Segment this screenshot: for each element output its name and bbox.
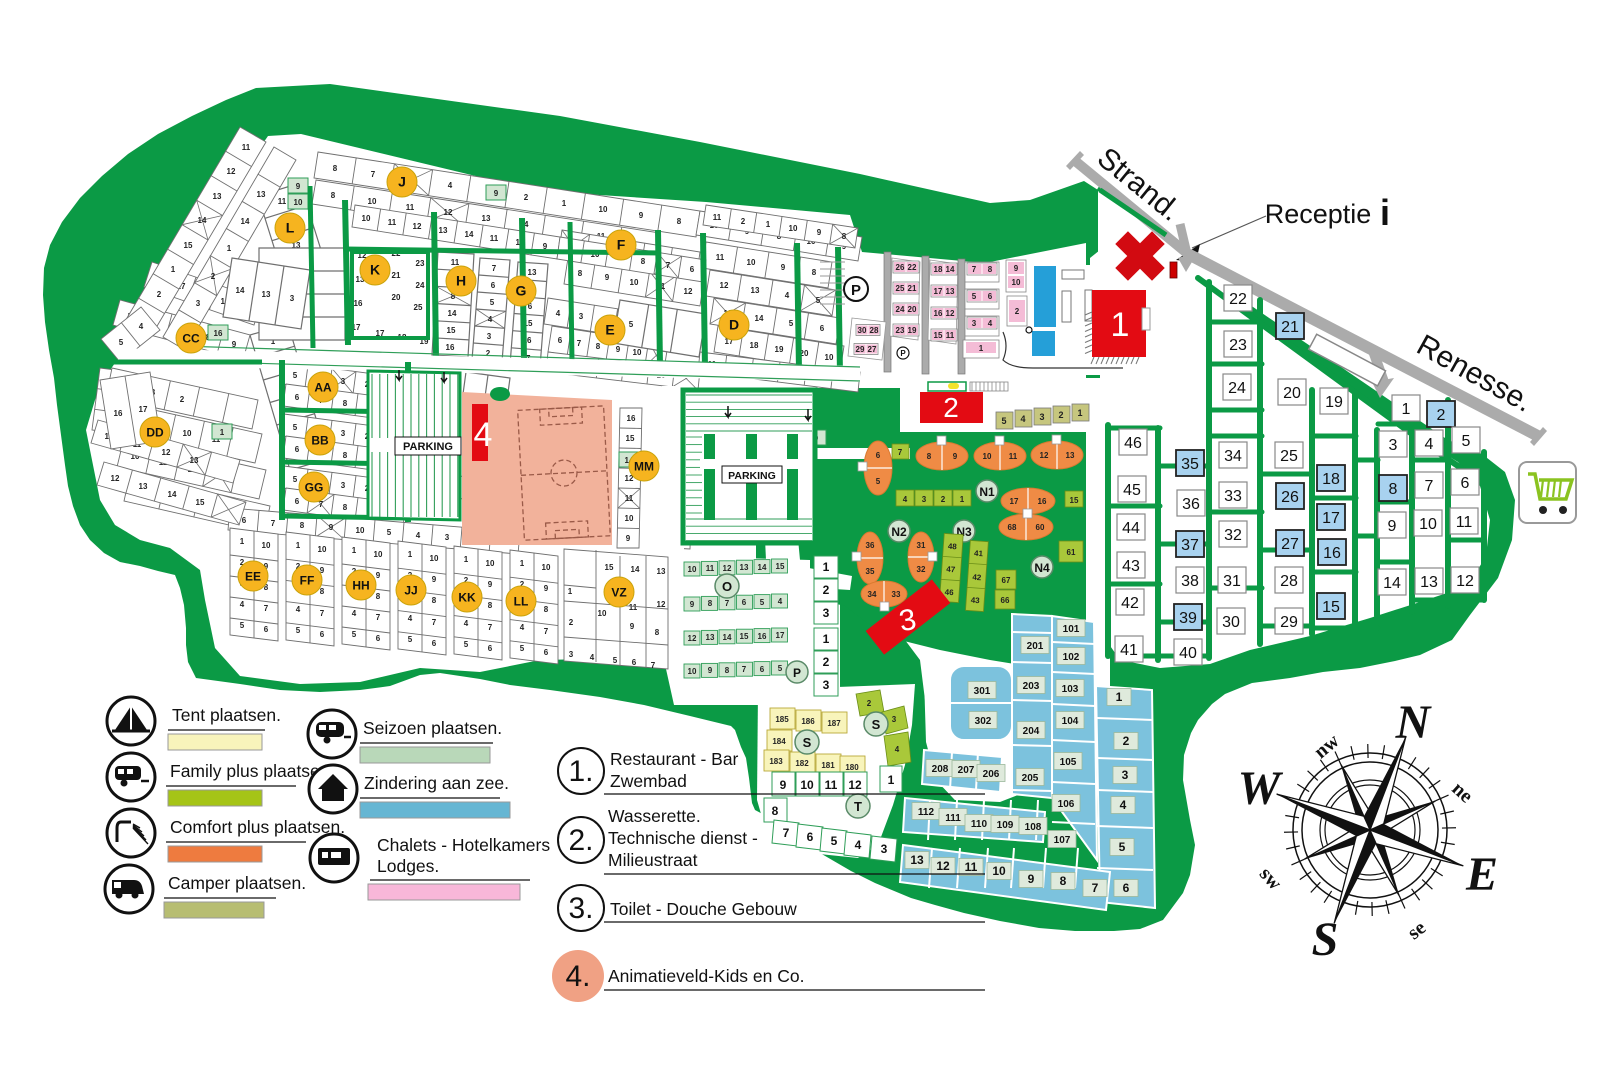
svg-text:10: 10 xyxy=(294,198,303,207)
svg-text:16: 16 xyxy=(1323,545,1341,562)
svg-text:7: 7 xyxy=(271,519,276,528)
svg-text:10: 10 xyxy=(598,609,607,618)
svg-text:1: 1 xyxy=(352,546,357,555)
svg-text:11: 11 xyxy=(388,218,397,227)
svg-text:8: 8 xyxy=(544,605,549,614)
svg-text:11: 11 xyxy=(406,203,415,212)
svg-text:9: 9 xyxy=(329,523,334,532)
svg-text:4: 4 xyxy=(448,181,453,190)
svg-text:3: 3 xyxy=(341,429,346,438)
svg-text:14: 14 xyxy=(465,230,474,239)
svg-text:11: 11 xyxy=(706,564,715,573)
svg-text:10: 10 xyxy=(688,565,697,574)
svg-text:40: 40 xyxy=(1179,645,1197,662)
svg-text:7: 7 xyxy=(1092,881,1099,895)
svg-text:12: 12 xyxy=(162,448,171,457)
svg-text:13: 13 xyxy=(213,192,222,201)
svg-text:14: 14 xyxy=(755,314,764,323)
svg-text:10: 10 xyxy=(318,545,327,554)
svg-text:33: 33 xyxy=(1224,488,1242,505)
svg-text:32: 32 xyxy=(1224,527,1242,544)
svg-text:9: 9 xyxy=(1028,872,1035,886)
svg-text:2: 2 xyxy=(486,349,491,358)
svg-text:186: 186 xyxy=(801,717,815,726)
svg-text:16: 16 xyxy=(627,414,636,423)
svg-text:32: 32 xyxy=(917,565,926,574)
svg-text:13: 13 xyxy=(946,287,955,296)
svg-text:2: 2 xyxy=(524,193,529,202)
svg-text:3: 3 xyxy=(881,842,888,856)
svg-text:46: 46 xyxy=(1124,435,1142,452)
svg-text:1: 1 xyxy=(960,495,965,504)
svg-text:5: 5 xyxy=(119,338,124,347)
svg-text:16: 16 xyxy=(934,309,943,318)
svg-text:1: 1 xyxy=(562,199,567,208)
svg-text:17: 17 xyxy=(139,405,148,414)
svg-text:11: 11 xyxy=(1009,452,1018,461)
svg-text:23: 23 xyxy=(1229,337,1247,354)
svg-text:61: 61 xyxy=(1067,548,1076,557)
svg-text:12: 12 xyxy=(936,859,950,873)
svg-text:22: 22 xyxy=(908,263,917,272)
svg-text:5: 5 xyxy=(408,635,413,644)
svg-text:13: 13 xyxy=(439,226,448,235)
svg-text:34: 34 xyxy=(1224,448,1242,465)
svg-text:6: 6 xyxy=(295,497,300,506)
svg-text:47: 47 xyxy=(946,565,956,575)
svg-text:FF: FF xyxy=(300,574,315,588)
svg-text:4: 4 xyxy=(464,619,469,628)
svg-text:11: 11 xyxy=(451,258,460,267)
svg-text:7: 7 xyxy=(432,618,437,627)
svg-text:6: 6 xyxy=(690,265,695,274)
svg-text:EE: EE xyxy=(245,570,261,584)
svg-text:181: 181 xyxy=(821,761,835,770)
svg-text:33: 33 xyxy=(892,590,901,599)
svg-text:10: 10 xyxy=(542,563,551,572)
svg-text:1: 1 xyxy=(1077,408,1082,418)
svg-text:30: 30 xyxy=(858,326,867,335)
svg-text:18: 18 xyxy=(1322,471,1340,488)
svg-text:Zwembad: Zwembad xyxy=(610,771,687,791)
svg-text:12: 12 xyxy=(413,222,422,231)
svg-text:68: 68 xyxy=(1008,523,1017,532)
svg-text:5: 5 xyxy=(1119,840,1126,854)
svg-text:9: 9 xyxy=(817,228,822,237)
svg-text:1: 1 xyxy=(823,632,830,646)
svg-text:6: 6 xyxy=(242,516,247,525)
svg-text:9: 9 xyxy=(494,189,499,198)
svg-text:2: 2 xyxy=(941,495,946,504)
svg-text:Restaurant - Bar: Restaurant - Bar xyxy=(610,749,739,769)
svg-text:13: 13 xyxy=(257,190,266,199)
svg-text:106: 106 xyxy=(1058,799,1075,810)
svg-text:37: 37 xyxy=(1181,537,1199,554)
svg-text:1: 1 xyxy=(296,541,301,550)
svg-text:3: 3 xyxy=(290,294,295,303)
svg-text:4: 4 xyxy=(240,600,245,609)
svg-text:9: 9 xyxy=(1388,518,1397,535)
svg-text:PARKING: PARKING xyxy=(403,441,453,453)
svg-text:15: 15 xyxy=(184,241,193,250)
svg-text:N2: N2 xyxy=(891,525,907,539)
svg-text:13: 13 xyxy=(751,286,760,295)
svg-text:13: 13 xyxy=(657,567,666,576)
svg-text:2: 2 xyxy=(180,395,185,404)
svg-text:11: 11 xyxy=(1456,514,1473,531)
svg-text:6: 6 xyxy=(760,665,765,674)
svg-text:9: 9 xyxy=(544,584,549,593)
svg-text:10: 10 xyxy=(992,864,1006,878)
svg-text:15: 15 xyxy=(626,434,635,443)
svg-text:6: 6 xyxy=(988,292,993,301)
svg-text:105: 105 xyxy=(1060,757,1077,768)
svg-text:20: 20 xyxy=(392,293,401,302)
svg-text:T: T xyxy=(854,799,862,814)
svg-text:1: 1 xyxy=(408,550,413,559)
svg-text:7: 7 xyxy=(742,665,747,674)
svg-text:4: 4 xyxy=(520,623,525,632)
svg-text:111: 111 xyxy=(945,813,961,824)
svg-text:101: 101 xyxy=(1063,624,1080,635)
svg-text:8: 8 xyxy=(333,164,338,173)
svg-text:8: 8 xyxy=(432,596,437,605)
svg-text:16: 16 xyxy=(446,343,455,352)
svg-text:18: 18 xyxy=(934,265,943,274)
svg-text:6: 6 xyxy=(264,625,269,634)
svg-text:3.: 3. xyxy=(568,892,593,925)
svg-text:10: 10 xyxy=(1419,516,1437,533)
svg-text:5: 5 xyxy=(293,423,298,432)
svg-text:26: 26 xyxy=(896,263,905,272)
svg-text:2: 2 xyxy=(211,272,216,281)
svg-text:1: 1 xyxy=(1111,306,1130,344)
svg-text:207: 207 xyxy=(958,765,975,776)
svg-text:6: 6 xyxy=(295,393,300,402)
svg-text:4: 4 xyxy=(988,319,993,328)
svg-text:31: 31 xyxy=(917,541,926,550)
svg-text:1: 1 xyxy=(568,587,573,596)
svg-text:S: S xyxy=(1312,913,1339,966)
svg-text:20: 20 xyxy=(1283,385,1301,402)
svg-text:P: P xyxy=(793,666,801,680)
svg-text:8: 8 xyxy=(641,257,646,266)
svg-text:S: S xyxy=(803,735,812,750)
svg-text:2: 2 xyxy=(1437,407,1446,424)
svg-text:7: 7 xyxy=(371,170,376,179)
svg-text:1: 1 xyxy=(823,560,830,574)
svg-text:W: W xyxy=(1238,762,1284,815)
svg-text:1: 1 xyxy=(227,244,232,253)
svg-text:8: 8 xyxy=(842,232,847,241)
svg-text:i: i xyxy=(1380,192,1390,233)
svg-text:3: 3 xyxy=(487,332,492,341)
svg-text:10: 10 xyxy=(630,278,639,287)
svg-text:6: 6 xyxy=(820,324,825,333)
svg-text:8: 8 xyxy=(320,587,325,596)
svg-text:29: 29 xyxy=(856,345,865,354)
svg-text:8: 8 xyxy=(708,599,713,608)
svg-text:4: 4 xyxy=(895,745,900,754)
svg-text:11: 11 xyxy=(716,253,725,262)
svg-text:5: 5 xyxy=(296,626,301,635)
svg-text:7: 7 xyxy=(1425,478,1434,495)
svg-text:3: 3 xyxy=(823,678,830,692)
svg-text:8: 8 xyxy=(578,269,583,278)
svg-text:60: 60 xyxy=(1036,523,1045,532)
svg-text:17: 17 xyxy=(1322,510,1340,527)
svg-text:5: 5 xyxy=(293,371,298,380)
svg-text:E: E xyxy=(1465,848,1498,901)
svg-text:13: 13 xyxy=(528,268,537,277)
svg-text:J: J xyxy=(398,174,406,190)
svg-text:7: 7 xyxy=(783,826,790,840)
svg-text:2: 2 xyxy=(823,655,830,669)
svg-text:11: 11 xyxy=(278,197,287,206)
svg-text:5: 5 xyxy=(1001,416,1006,426)
svg-text:18: 18 xyxy=(750,341,759,350)
svg-text:27: 27 xyxy=(868,345,877,354)
svg-text:112: 112 xyxy=(918,807,935,818)
svg-text:10: 10 xyxy=(633,348,642,357)
svg-text:26: 26 xyxy=(1281,489,1299,506)
svg-text:19: 19 xyxy=(1325,394,1343,411)
svg-text:15: 15 xyxy=(605,563,614,572)
svg-text:25: 25 xyxy=(896,284,905,293)
svg-text:12: 12 xyxy=(444,208,453,217)
svg-text:1: 1 xyxy=(766,220,771,229)
svg-text:3: 3 xyxy=(892,715,897,724)
svg-text:36: 36 xyxy=(1182,496,1200,513)
svg-text:9: 9 xyxy=(432,575,437,584)
svg-text:10: 10 xyxy=(430,554,439,563)
svg-text:1: 1 xyxy=(1116,690,1123,704)
svg-text:7: 7 xyxy=(264,604,269,613)
svg-text:DD: DD xyxy=(146,426,164,440)
svg-text:184: 184 xyxy=(772,737,786,746)
svg-text:14: 14 xyxy=(946,265,955,274)
svg-text:3: 3 xyxy=(579,312,584,321)
svg-text:14: 14 xyxy=(198,216,207,225)
svg-text:12: 12 xyxy=(1040,451,1049,460)
svg-text:3: 3 xyxy=(341,377,346,386)
svg-text:7: 7 xyxy=(972,265,977,274)
svg-text:11: 11 xyxy=(713,213,722,222)
svg-text:5: 5 xyxy=(240,621,245,630)
svg-text:9: 9 xyxy=(488,580,493,589)
svg-text:182: 182 xyxy=(795,759,809,768)
svg-text:7: 7 xyxy=(725,599,730,608)
svg-text:11: 11 xyxy=(625,494,634,503)
svg-text:19: 19 xyxy=(775,345,784,354)
svg-text:Lodges.: Lodges. xyxy=(377,856,439,876)
svg-text:35: 35 xyxy=(1181,456,1199,473)
svg-text:3: 3 xyxy=(1039,412,1044,422)
svg-text:9: 9 xyxy=(1014,264,1019,273)
svg-text:3: 3 xyxy=(1122,768,1129,782)
svg-text:HH: HH xyxy=(352,579,369,593)
svg-text:8: 8 xyxy=(927,452,932,461)
svg-text:4: 4 xyxy=(903,495,908,504)
svg-text:9: 9 xyxy=(616,345,621,354)
svg-text:7: 7 xyxy=(320,609,325,618)
svg-text:43: 43 xyxy=(970,596,980,606)
svg-text:5: 5 xyxy=(520,644,525,653)
svg-text:14: 14 xyxy=(1383,575,1401,592)
svg-text:24: 24 xyxy=(416,281,425,290)
svg-text:KK: KK xyxy=(458,591,476,605)
svg-text:205: 205 xyxy=(1022,773,1039,784)
svg-text:10: 10 xyxy=(486,559,495,568)
svg-text:44: 44 xyxy=(1122,520,1140,537)
svg-text:13: 13 xyxy=(190,456,199,465)
svg-text:BB: BB xyxy=(311,434,329,448)
svg-text:14: 14 xyxy=(168,490,177,499)
svg-text:3: 3 xyxy=(341,481,346,490)
svg-text:5: 5 xyxy=(876,477,881,486)
svg-text:10: 10 xyxy=(183,429,192,438)
svg-text:66: 66 xyxy=(1001,596,1010,605)
svg-text:28: 28 xyxy=(870,326,879,335)
svg-text:5: 5 xyxy=(972,292,977,301)
svg-text:P: P xyxy=(851,282,861,299)
svg-text:27: 27 xyxy=(1281,536,1299,553)
svg-text:6: 6 xyxy=(876,451,881,460)
svg-text:1.: 1. xyxy=(568,755,593,788)
svg-text:42: 42 xyxy=(1121,595,1139,612)
svg-text:3: 3 xyxy=(196,299,201,308)
svg-text:N1: N1 xyxy=(979,485,995,499)
svg-text:N4: N4 xyxy=(1034,561,1050,575)
svg-text:204: 204 xyxy=(1023,726,1040,737)
svg-text:4: 4 xyxy=(474,416,493,454)
svg-text:7: 7 xyxy=(488,623,493,632)
svg-text:3: 3 xyxy=(972,319,977,328)
svg-text:9: 9 xyxy=(708,666,713,675)
svg-text:36: 36 xyxy=(866,541,875,550)
svg-text:12: 12 xyxy=(946,309,955,318)
svg-text:8: 8 xyxy=(1060,874,1067,888)
svg-text:4: 4 xyxy=(556,309,561,318)
svg-text:6: 6 xyxy=(1123,881,1130,895)
svg-text:22: 22 xyxy=(1229,291,1247,308)
svg-text:14: 14 xyxy=(723,633,732,642)
svg-text:15: 15 xyxy=(740,632,749,641)
svg-text:38: 38 xyxy=(1181,573,1199,590)
svg-text:3: 3 xyxy=(1389,437,1398,454)
svg-text:6: 6 xyxy=(558,336,563,345)
svg-text:9: 9 xyxy=(376,571,381,580)
svg-text:Wasserette.: Wasserette. xyxy=(608,806,701,826)
svg-text:14: 14 xyxy=(241,217,250,226)
svg-text:Toilet - Douche Gebouw: Toilet - Douche Gebouw xyxy=(610,899,797,919)
svg-text:9: 9 xyxy=(630,622,635,631)
svg-text:16: 16 xyxy=(354,299,363,308)
svg-text:12: 12 xyxy=(227,167,236,176)
svg-text:9: 9 xyxy=(690,600,695,609)
svg-text:10: 10 xyxy=(825,353,834,362)
svg-text:12: 12 xyxy=(723,564,732,573)
svg-text:5: 5 xyxy=(1462,433,1471,450)
svg-text:10: 10 xyxy=(688,667,697,676)
svg-text:VZ: VZ xyxy=(611,586,626,600)
svg-text:Camper plaatsen.: Camper plaatsen. xyxy=(168,873,306,893)
svg-text:12: 12 xyxy=(848,778,862,792)
svg-text:14: 14 xyxy=(448,309,457,318)
svg-text:3: 3 xyxy=(569,650,574,659)
svg-text:5: 5 xyxy=(387,528,392,537)
svg-text:23: 23 xyxy=(416,259,425,268)
svg-text:H: H xyxy=(456,273,466,289)
svg-text:10: 10 xyxy=(262,541,271,550)
svg-text:10: 10 xyxy=(747,258,756,267)
svg-text:104: 104 xyxy=(1062,716,1079,727)
svg-text:2.: 2. xyxy=(568,824,593,857)
svg-text:6: 6 xyxy=(376,634,381,643)
svg-text:10: 10 xyxy=(983,452,992,461)
svg-text:17: 17 xyxy=(1010,497,1019,506)
svg-text:8: 8 xyxy=(343,503,348,512)
svg-text:1: 1 xyxy=(220,428,225,437)
svg-text:9: 9 xyxy=(953,452,958,461)
svg-text:109: 109 xyxy=(997,820,1014,831)
svg-text:8: 8 xyxy=(488,601,493,610)
svg-text:6: 6 xyxy=(544,648,549,657)
svg-text:7: 7 xyxy=(544,627,549,636)
svg-text:Zindering aan zee.: Zindering aan zee. xyxy=(364,773,509,793)
svg-text:5: 5 xyxy=(629,320,634,329)
svg-text:13: 13 xyxy=(1066,451,1075,460)
svg-text:PARKING: PARKING xyxy=(728,470,776,482)
svg-text:5: 5 xyxy=(613,656,618,665)
svg-text:11: 11 xyxy=(965,860,978,874)
svg-text:183: 183 xyxy=(769,757,783,766)
svg-text:46: 46 xyxy=(944,588,954,598)
svg-text:4: 4 xyxy=(1425,436,1434,453)
svg-text:2: 2 xyxy=(569,618,574,627)
svg-text:CC: CC xyxy=(182,332,200,346)
svg-text:25: 25 xyxy=(1280,448,1298,465)
svg-text:21: 21 xyxy=(392,271,401,280)
svg-text:4: 4 xyxy=(778,597,783,606)
svg-text:12: 12 xyxy=(1456,573,1474,590)
svg-text:Technische dienst -: Technische dienst - xyxy=(608,828,758,848)
svg-text:JJ: JJ xyxy=(404,584,417,598)
svg-text:5: 5 xyxy=(778,664,783,673)
svg-text:1: 1 xyxy=(1402,401,1411,418)
svg-text:15: 15 xyxy=(447,326,456,335)
svg-text:2: 2 xyxy=(943,392,959,423)
svg-text:Receptie: Receptie xyxy=(1265,199,1372,229)
svg-text:GG: GG xyxy=(305,481,324,495)
svg-text:6: 6 xyxy=(432,639,437,648)
svg-text:LL: LL xyxy=(514,595,529,609)
svg-text:10: 10 xyxy=(599,205,608,214)
svg-text:8: 8 xyxy=(988,265,993,274)
svg-text:16: 16 xyxy=(114,409,123,418)
svg-text:7: 7 xyxy=(666,261,671,270)
svg-text:Comfort plus plaatsen.: Comfort plus plaatsen. xyxy=(170,817,345,837)
svg-text:23: 23 xyxy=(896,326,905,335)
svg-text:14: 14 xyxy=(236,286,245,295)
svg-text:11: 11 xyxy=(946,331,955,340)
svg-text:180: 180 xyxy=(845,763,859,772)
svg-text:1: 1 xyxy=(888,773,895,787)
svg-text:10: 10 xyxy=(356,526,365,535)
svg-text:9: 9 xyxy=(296,182,301,191)
svg-text:7: 7 xyxy=(492,264,497,273)
svg-text:Animatieveld-Kids en Co.: Animatieveld-Kids en Co. xyxy=(608,966,804,986)
